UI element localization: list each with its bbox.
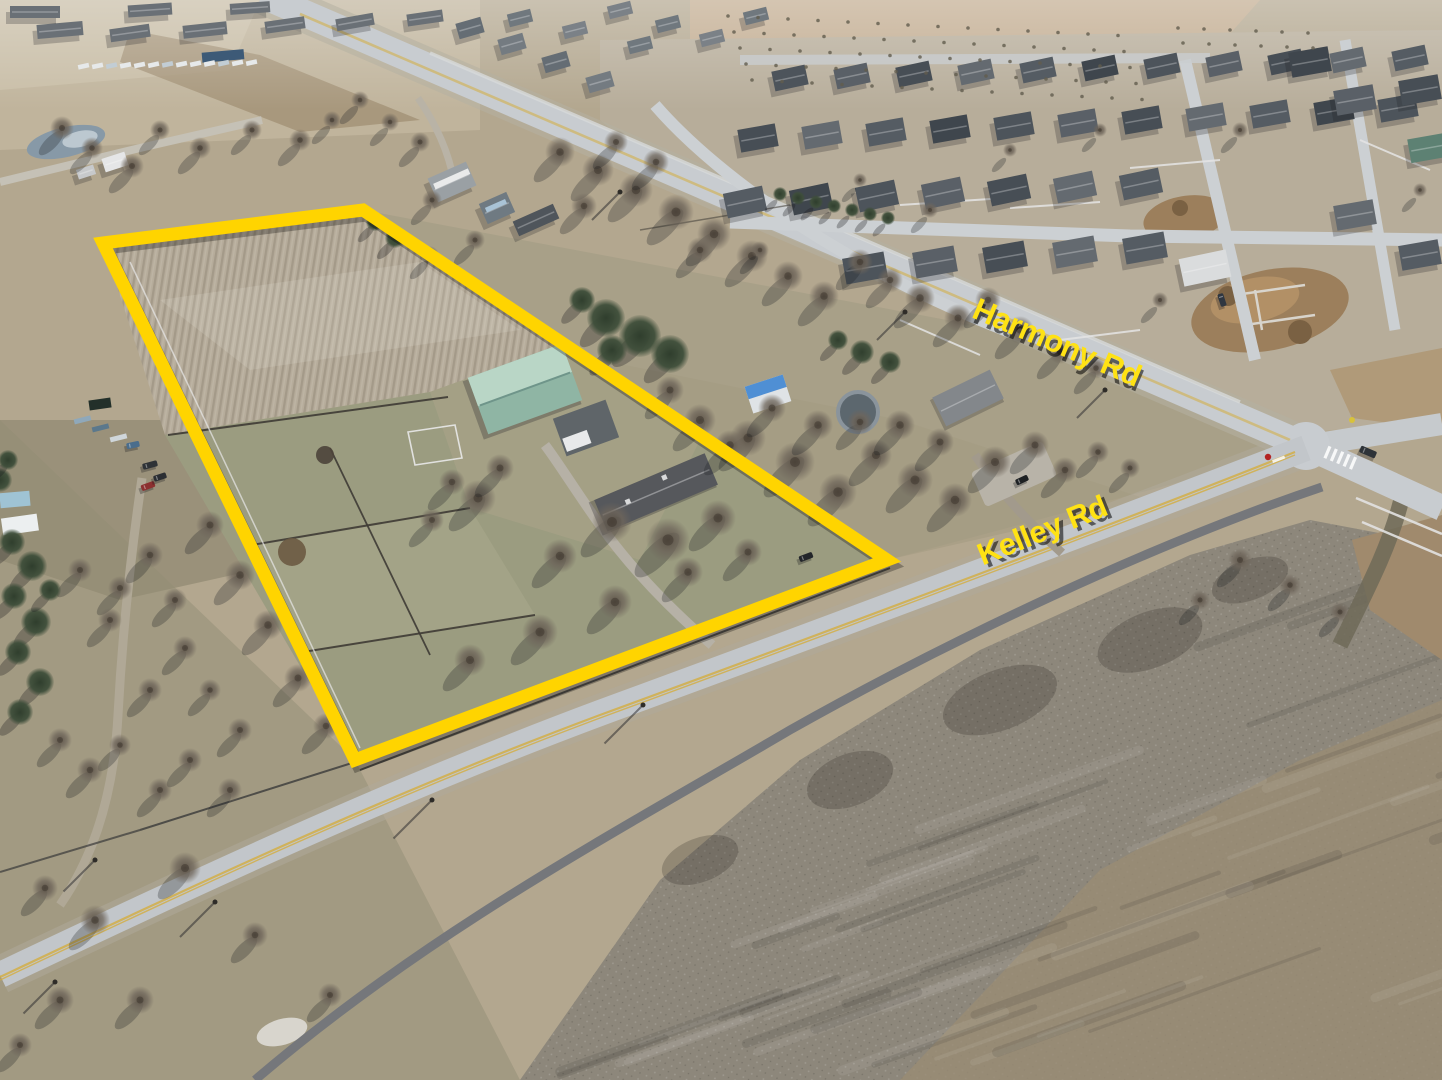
aerial-photo: Harmony Rd Harmony Rd Kelley Rd Kelley R… [0, 0, 1442, 1080]
aerial-photo-canvas: Harmony Rd Harmony Rd Kelley Rd Kelley R… [0, 0, 1442, 1080]
